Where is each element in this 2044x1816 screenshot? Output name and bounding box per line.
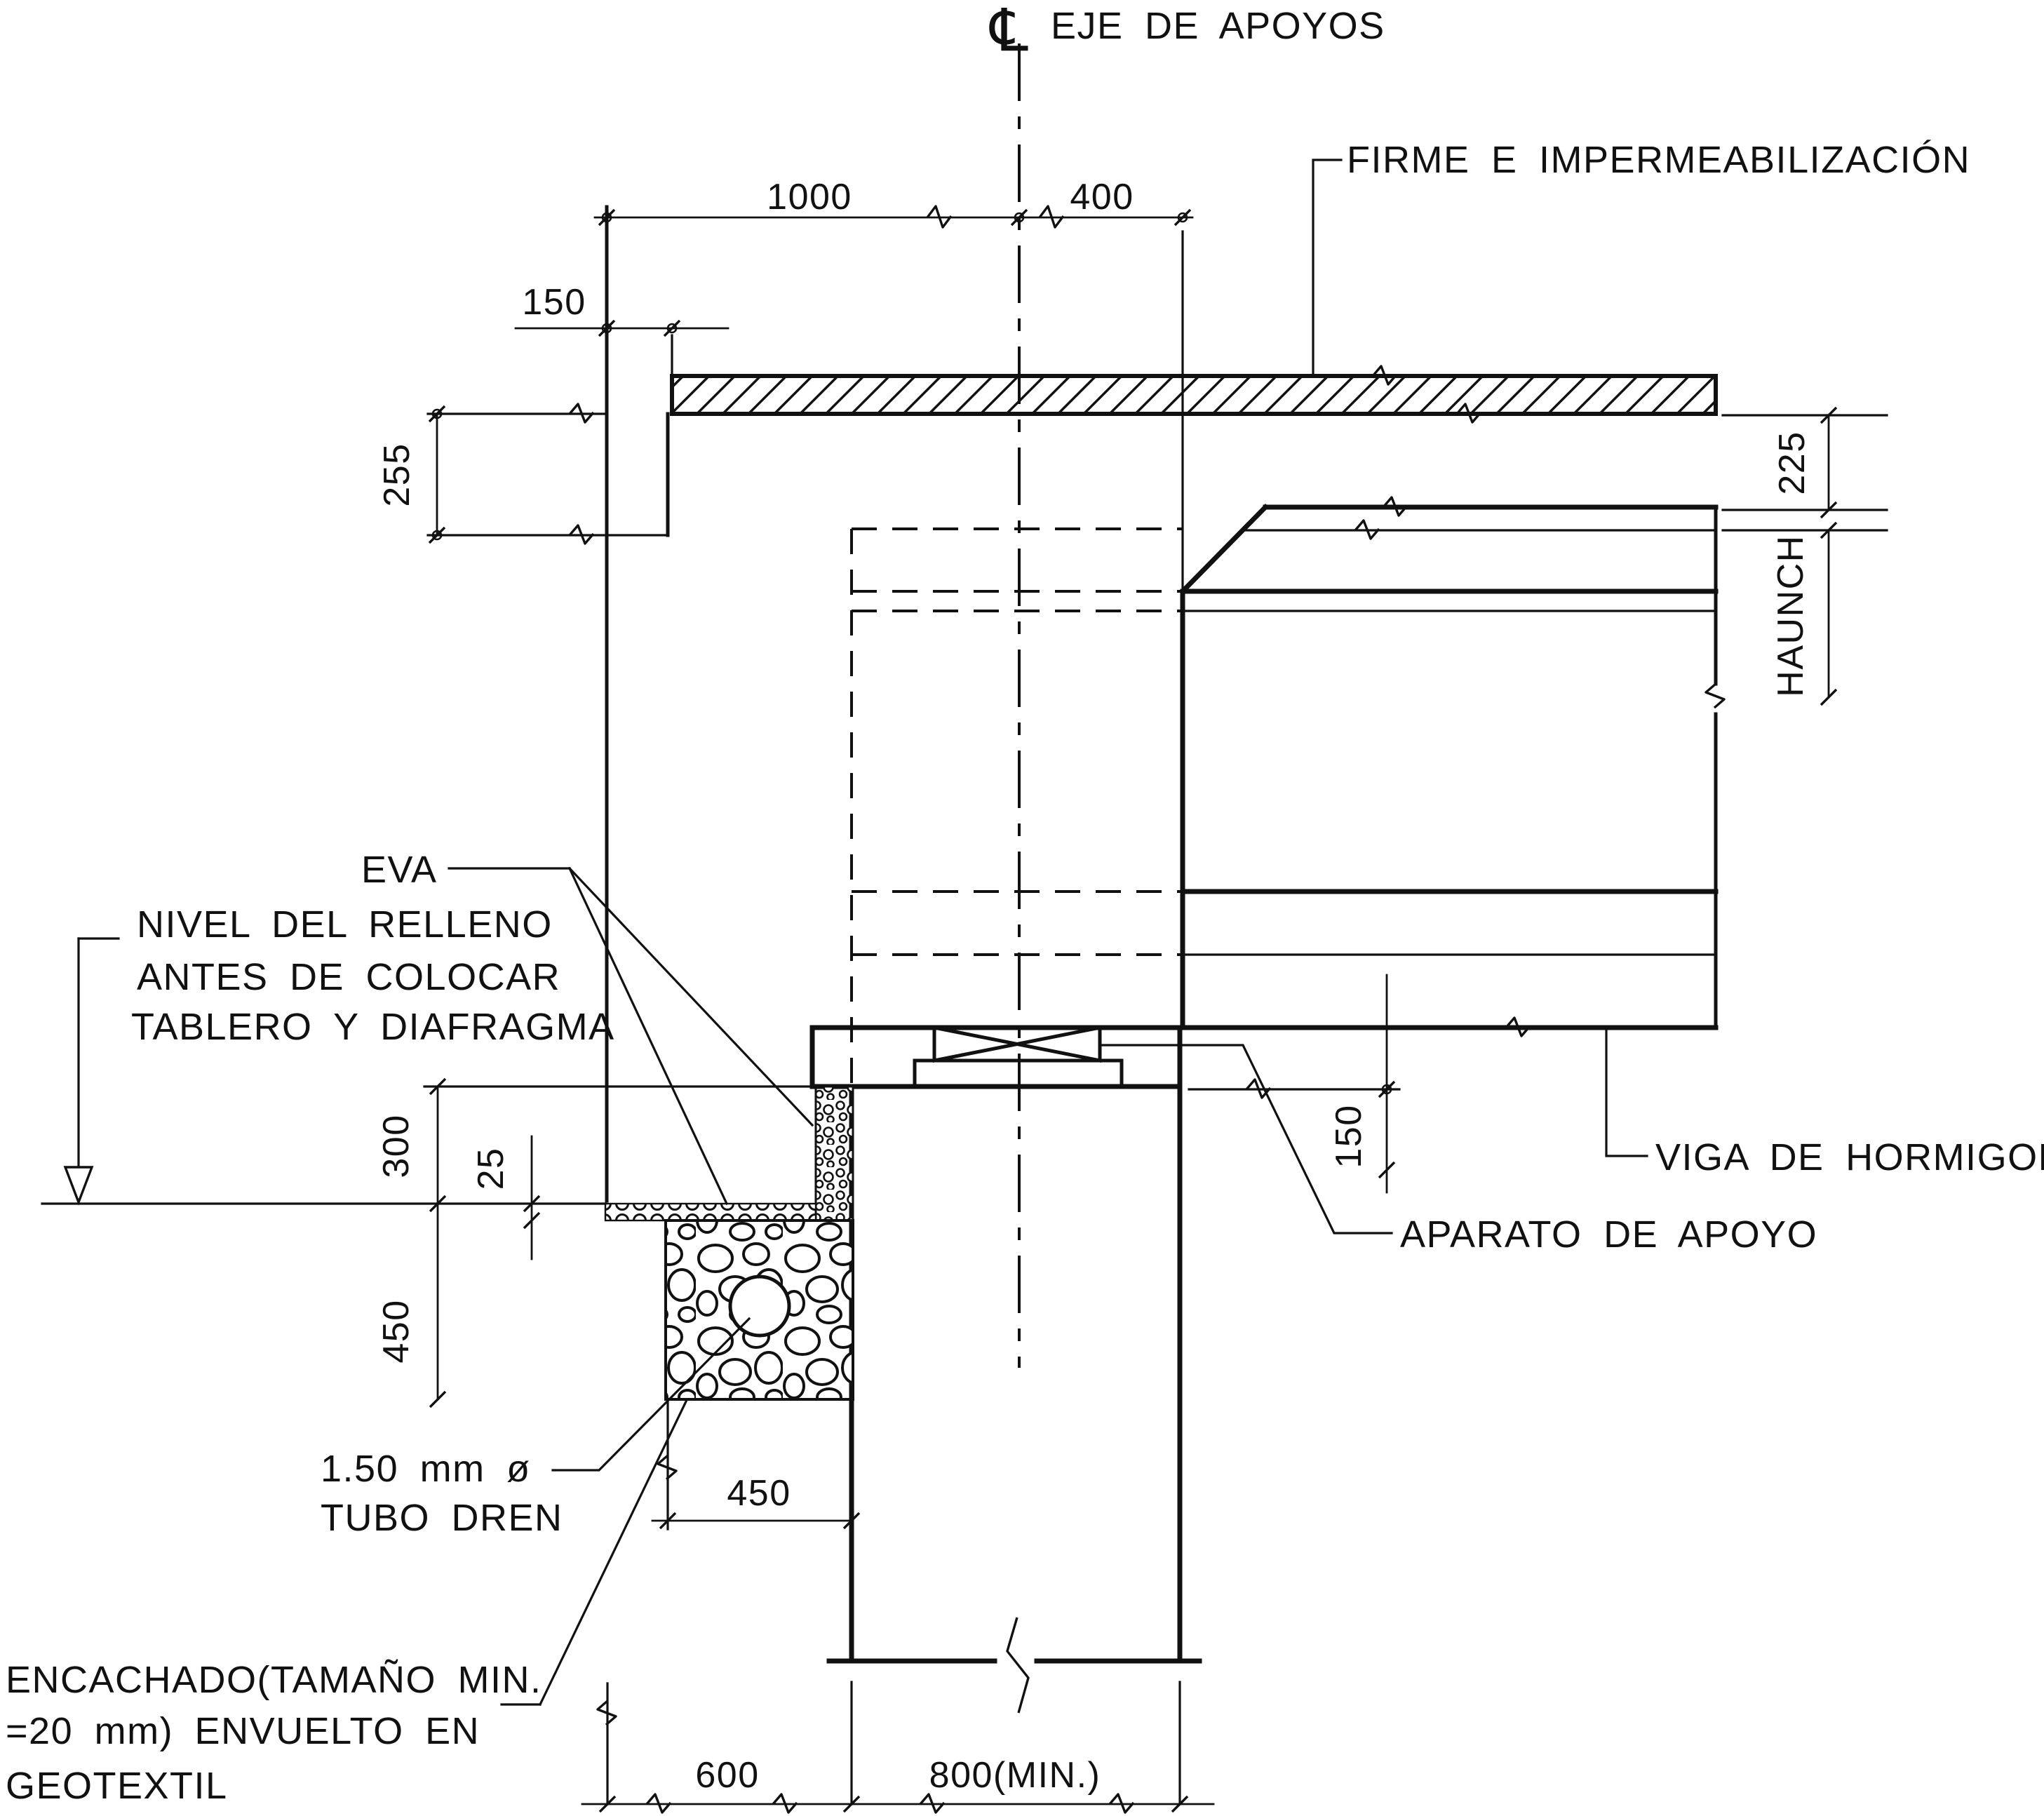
gravel-drain-wrap — [666, 1220, 853, 1399]
label-eva: EVA — [361, 849, 438, 891]
label-nivel-1: NIVEL DEL RELLENO — [137, 903, 553, 946]
dim-450-left-text: 450 — [376, 1299, 417, 1363]
drain-pipe-circle — [730, 1277, 789, 1336]
label-encachado-2: =20 mm) ENVUELTO EN — [6, 1710, 480, 1752]
dim-1000-text: 1000 — [767, 177, 852, 217]
dim-225-text: 225 — [1772, 431, 1813, 495]
eva-joint-strip — [816, 1087, 853, 1220]
label-nivel-3: TABLERO Y DIAFRAGMA — [131, 1006, 615, 1048]
label-haunch: HAUNCH — [1770, 534, 1811, 697]
detail-drawing: ℄ EJE DE APOYOS — [0, 0, 2044, 1816]
bridge-abutment-detail-sheet: ℄ EJE DE APOYOS — [0, 0, 2044, 1816]
dim-800-text: 800(MIN.) — [929, 1755, 1101, 1796]
dim-255-text: 255 — [377, 443, 417, 506]
dim-400-text: 400 — [1070, 177, 1134, 217]
label-firme: FIRME E IMPERMEABILIZACIÓN — [1347, 139, 1970, 181]
dim-300-text: 300 — [376, 1114, 417, 1178]
label-aparato: APARATO DE APOYO — [1400, 1213, 1817, 1256]
label-encachado-3: GEOTEXTIL — [6, 1765, 228, 1807]
dim-150-seat-text: 150 — [1329, 1104, 1369, 1168]
callout-nivel: NIVEL DEL RELLENO ANTES DE COLOCAR TABLE… — [131, 903, 615, 1048]
firme-hatch-band — [672, 376, 1716, 414]
label-viga: VIGA DE HORMIGON — [1655, 1136, 2044, 1178]
dim-150-top-text: 150 — [522, 282, 586, 323]
bedding-strip — [605, 1204, 816, 1220]
centerline-label: EJE DE APOYOS — [1051, 5, 1385, 47]
label-nivel-2: ANTES DE COLOCAR — [137, 956, 560, 998]
label-tubo-2: TUBO DREN — [321, 1497, 563, 1539]
dim-450-gravel-text: 450 — [727, 1473, 791, 1514]
dim-600-text: 600 — [695, 1755, 759, 1796]
dim-25-text: 25 — [471, 1148, 511, 1190]
centerline-symbol: ℄ — [989, 0, 1029, 63]
label-encachado-1: ENCACHADO(TAMAÑO MIN. — [6, 1659, 542, 1701]
label-tubo-1: 1.50 mm ø — [321, 1448, 531, 1490]
